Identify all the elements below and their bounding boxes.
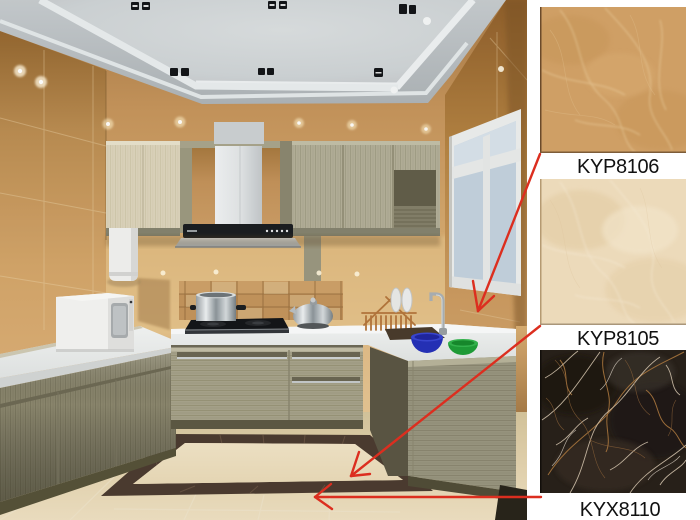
svg-text:KYP8106: KYP8106 [577, 156, 659, 178]
svg-text:KYP8105: KYP8105 [577, 328, 659, 350]
svg-text:KYX8110: KYX8110 [580, 499, 661, 520]
